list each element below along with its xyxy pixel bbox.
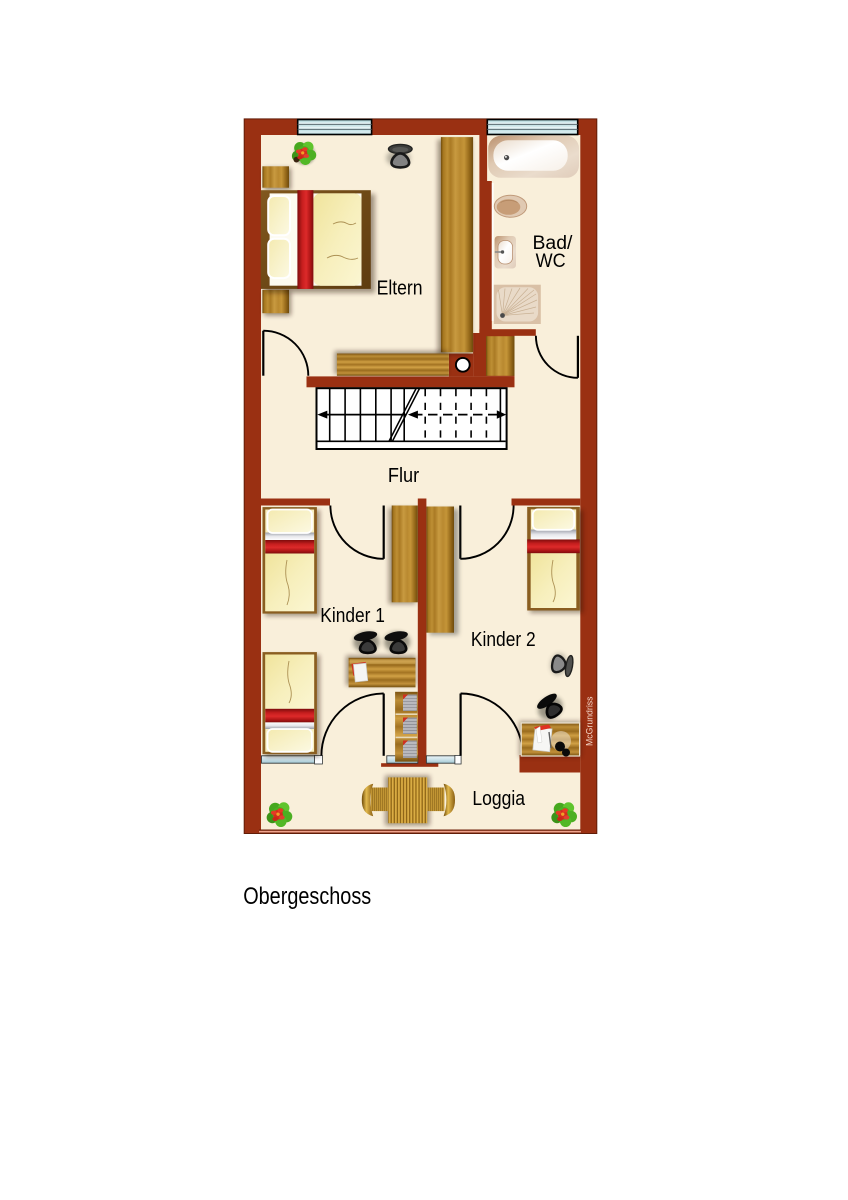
svg-text:McGrundriss: McGrundriss: [585, 696, 595, 746]
svg-text:Loggia: Loggia: [472, 788, 525, 810]
svg-text:Eltern: Eltern: [377, 278, 423, 300]
svg-text:Flur: Flur: [388, 465, 420, 487]
svg-text:Kinder 1: Kinder 1: [320, 605, 385, 627]
svg-text:WC: WC: [536, 251, 566, 272]
svg-text:Kinder 2: Kinder 2: [471, 629, 536, 651]
svg-text:Obergeschoss: Obergeschoss: [243, 883, 371, 910]
